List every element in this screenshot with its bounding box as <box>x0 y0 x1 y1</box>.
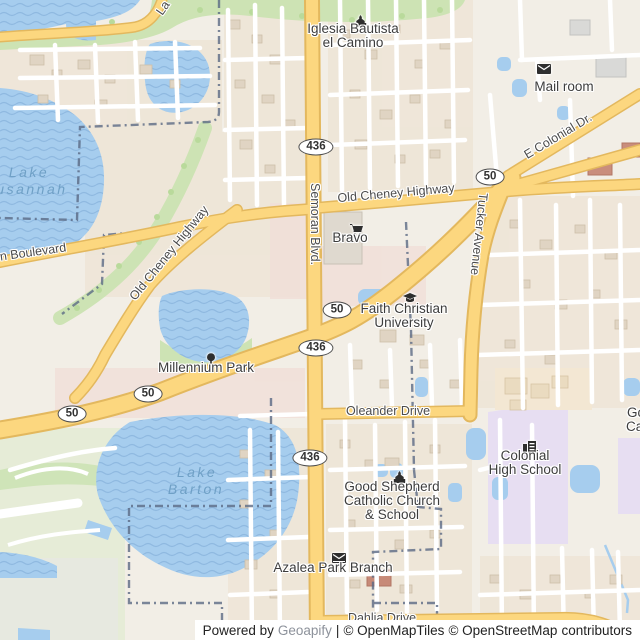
attribution-bar: Powered by Geoapify | © OpenMapTiles © O… <box>195 620 640 640</box>
semoran-blvd <box>312 0 317 640</box>
poi-label-colonial-high-school: Colonial High School <box>489 449 562 477</box>
poi-label-line: High School <box>489 463 562 477</box>
poi-label-partial-ca: Ca <box>626 420 640 434</box>
poi-label-line: University <box>360 316 447 330</box>
attribution-contributors: contributors <box>561 623 632 638</box>
poi-label-line: Good Shepherd <box>344 480 440 494</box>
map-canvas[interactable]: Lake Susannah Lake Barton La E Colonial … <box>0 0 640 640</box>
lake-barton-label-line1: Lake <box>177 464 217 480</box>
poi-label-mail-room: Mail room <box>534 80 593 94</box>
road-label-oleander-drive: Oleander Drive <box>346 404 430 418</box>
poi-label-line: Colonial <box>489 449 562 463</box>
poi-label-line: el Camino <box>307 36 399 50</box>
poi-label-line: & School <box>344 508 440 522</box>
poi-label-good-shepherd: Good Shepherd Catholic Church & School <box>344 480 440 522</box>
poi-label-azalea-park-branch: Azalea Park Branch <box>273 561 392 575</box>
poi-label-faith-christian-university: Faith Christian University <box>360 302 447 330</box>
poi-label-line: Catholic Church <box>344 494 440 508</box>
openmaptiles-link[interactable]: © OpenMapTiles <box>343 623 444 638</box>
attribution-separator: | <box>336 623 340 638</box>
poi-label-millennium-park: Millennium Park <box>158 361 254 375</box>
poi-label-line: Faith Christian <box>360 302 447 316</box>
road-label-semoran-blvd: Semoran Blvd. <box>308 183 322 265</box>
route-shield-50: 50 <box>323 302 352 319</box>
route-shield-50: 50 <box>58 406 87 423</box>
poi-label-iglesia-bautista: Iglesia Bautista el Camino <box>307 22 399 50</box>
route-shield-436: 436 <box>292 450 327 467</box>
lake-susannah-label-line1: Lake <box>9 164 49 180</box>
poi-label-bravo: Bravo <box>332 231 367 245</box>
route-shield-436: 436 <box>298 139 333 156</box>
route-shield-50: 50 <box>134 386 163 403</box>
lake-susannah-label-line2: Susannah <box>0 181 68 197</box>
geoapify-link[interactable]: Geoapify <box>278 623 332 638</box>
route-shield-50: 50 <box>476 169 505 186</box>
attribution-powered-by: Powered by <box>203 623 274 638</box>
lake-barton-label-line2: Barton <box>168 481 224 497</box>
poi-label-partial-go: Go <box>627 406 640 420</box>
map-tiles <box>0 0 640 640</box>
poi-label-line: Iglesia Bautista <box>307 22 399 36</box>
route-shield-436: 436 <box>298 340 333 357</box>
openstreetmap-link[interactable]: © OpenStreetMap <box>448 623 557 638</box>
